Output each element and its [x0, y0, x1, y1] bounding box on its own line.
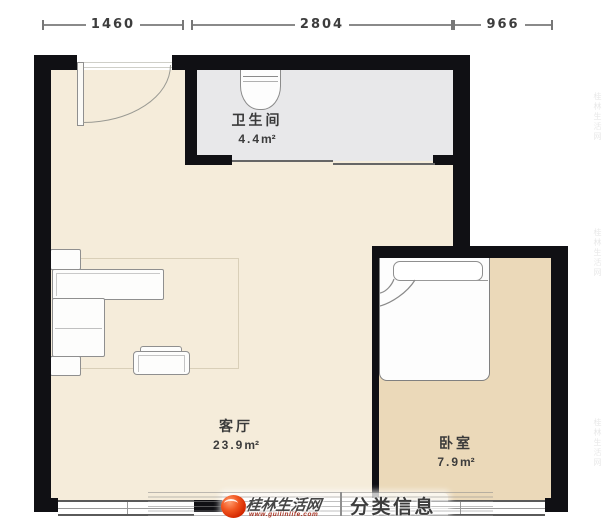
- side-table-top: [50, 249, 81, 270]
- dimension-line: [349, 24, 451, 26]
- living-room-floor: [185, 161, 453, 252]
- side-table-bottom: [50, 356, 81, 376]
- wall-bathroom-left: [185, 62, 197, 161]
- dimension-label-2: 2804: [295, 18, 349, 32]
- wall-bedroom-left: [372, 246, 379, 512]
- dimension-segment-1: 1460: [42, 18, 184, 32]
- wall-top-main: [172, 55, 470, 70]
- toilet-tank: [243, 76, 278, 82]
- dimension-segment-3: 966: [453, 18, 553, 32]
- wall-bathroom-bottom-right: [433, 155, 453, 165]
- window-mullion: [127, 502, 128, 514]
- watermark-url: www.guilinlife.com: [249, 511, 318, 518]
- watermark-divider: [340, 492, 342, 516]
- toilet: [240, 67, 281, 110]
- floor-plan: 1460 2804 966: [0, 0, 615, 529]
- edge-watermark: 桂林生活网: [592, 418, 603, 468]
- dimension-line: [455, 24, 481, 26]
- wall-bottom-left-corner: [34, 498, 58, 512]
- bathroom-area: 4.4m²: [197, 132, 317, 146]
- living-room-label: 客厅 23.9m²: [176, 416, 296, 452]
- wall-bathroom-bottom-left: [185, 155, 232, 165]
- wall-bedroom-top: [372, 246, 568, 258]
- bedroom-area: 7.9m²: [396, 455, 516, 469]
- wall-right-upper: [453, 55, 470, 258]
- dimension-tick: [551, 20, 553, 30]
- wall-bedroom-right: [551, 246, 568, 512]
- dimension-label-3: 966: [481, 18, 524, 32]
- dimension-label-1: 1460: [86, 18, 140, 32]
- blanket-fold: [379, 277, 419, 309]
- blanket-edge: [415, 280, 488, 281]
- bedroom-label: 卧室 7.9m²: [396, 433, 516, 469]
- dimension-line: [193, 24, 295, 26]
- living-room-name: 客厅: [176, 416, 296, 436]
- watermark-category: 分类信息: [350, 492, 436, 519]
- bathroom-label: 卫生间 4.4m²: [197, 110, 317, 146]
- bathroom-sliding-door-line: [232, 160, 333, 162]
- guilinlife-logo-icon: [221, 495, 246, 518]
- dimension-line: [140, 24, 182, 26]
- edge-watermark: 桂林生活网: [592, 92, 603, 142]
- loveseat: [133, 351, 190, 375]
- sofa-long-section: [52, 269, 164, 300]
- wall-bottom-right-corner: [545, 498, 568, 512]
- edge-watermark: 桂林生活网: [592, 228, 603, 278]
- bedroom-name: 卧室: [396, 433, 516, 453]
- wall-left: [34, 55, 51, 512]
- sofa-corner-section: [52, 298, 105, 357]
- bathroom-sliding-door-line: [333, 163, 435, 165]
- dimension-line: [44, 24, 86, 26]
- window-mullion: [460, 502, 461, 514]
- dimension-line: [525, 24, 551, 26]
- living-room-area: 23.9m²: [176, 438, 296, 452]
- living-room-window: [58, 500, 194, 516]
- bathroom-name: 卫生间: [197, 110, 317, 130]
- dimension-segment-2: 2804: [191, 18, 453, 32]
- dimension-tick: [182, 20, 184, 30]
